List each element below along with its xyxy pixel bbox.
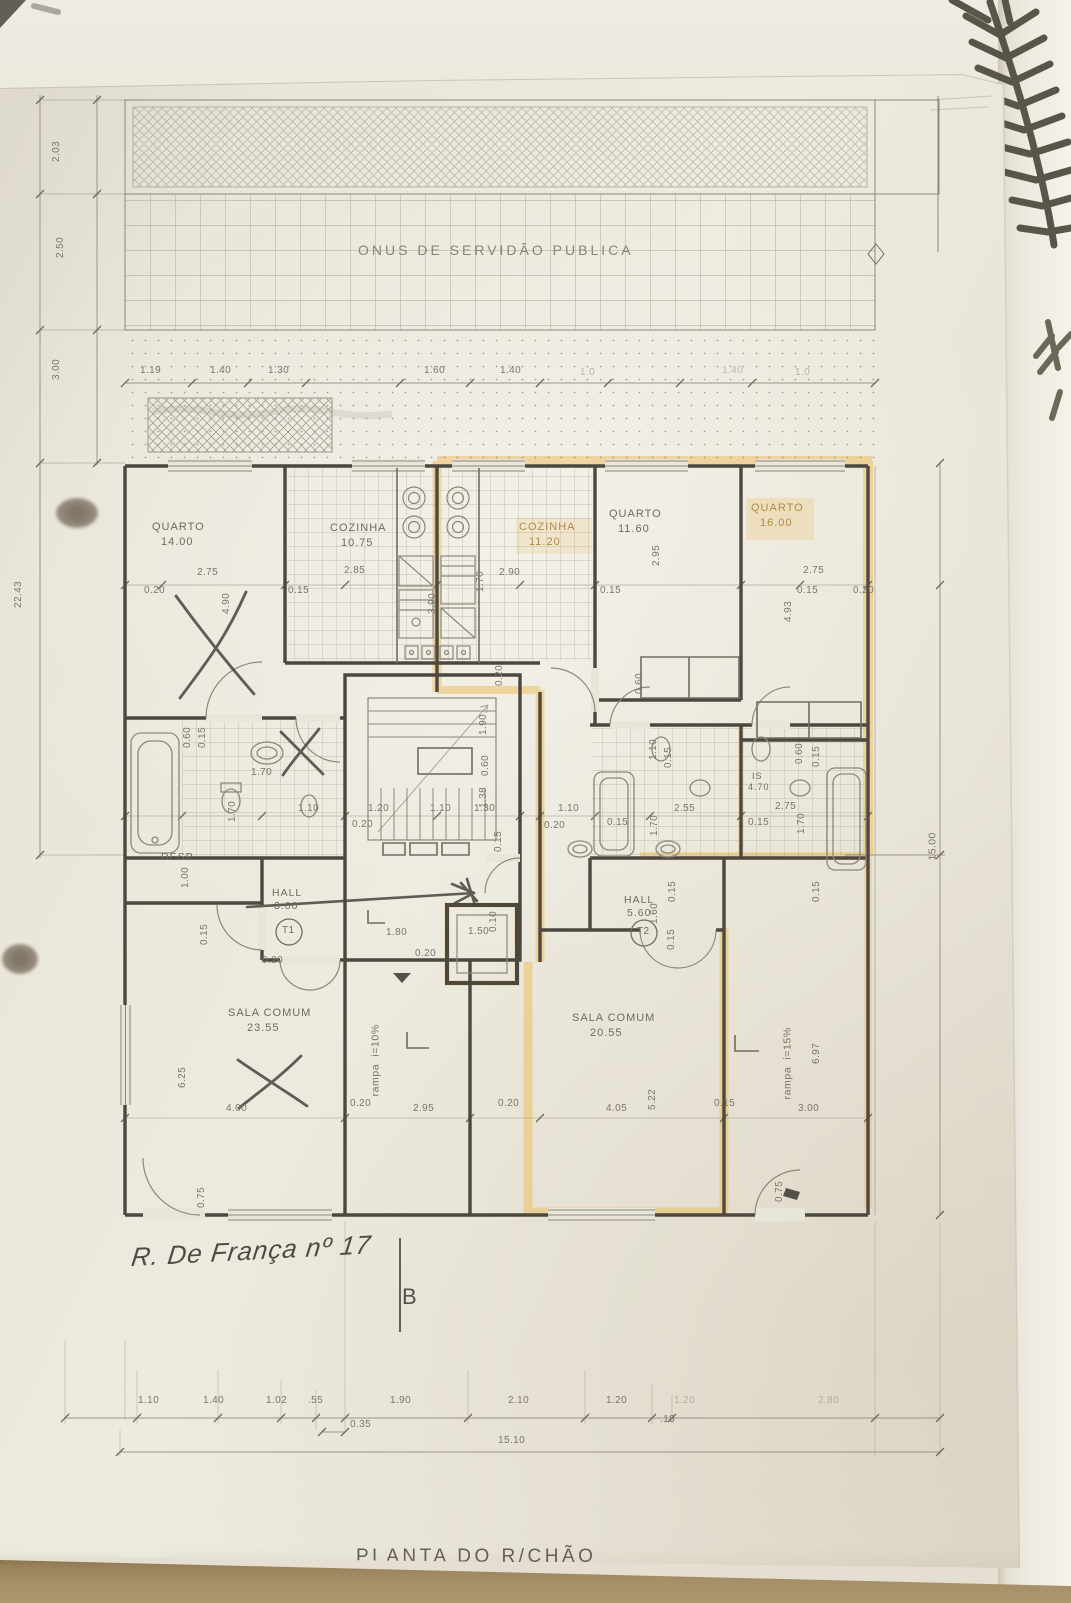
dimension-label: 0.10 [489, 911, 499, 932]
dimension-label: 0.15 [200, 924, 210, 945]
area-label: 5.60 [627, 908, 651, 919]
dimension-label: 0.15 [797, 586, 818, 596]
dimension-label: 2.90 [499, 568, 520, 578]
dimension-label: .18 [660, 1415, 675, 1425]
dimension-label: 4.93 [784, 601, 794, 622]
area-label: 11.60 [618, 524, 650, 535]
dimension-label: 1.30 [268, 366, 289, 376]
dimension-label: 2.95 [413, 1104, 434, 1114]
dimension-label: 1.10 [430, 804, 451, 814]
room-label-sala-1: SALA COMUM [228, 1008, 311, 1019]
apartment-t2-badge: T2 [637, 927, 649, 937]
dimension-label: 0.15 [714, 1099, 735, 1109]
dimension-label: 1.10 [298, 804, 319, 814]
dimension-label: 0.60 [481, 755, 491, 776]
room-label-cozinha-1: COZINHA [330, 523, 387, 534]
plan-linework [0, 0, 1071, 1603]
dimension-label: 0.20 [352, 820, 373, 830]
room-label-quarto-2: QUARTO [609, 509, 662, 520]
area-label: 4.70 [748, 783, 770, 792]
area-label: 20.55 [590, 1028, 623, 1039]
section-letter: B [402, 1286, 417, 1308]
dimension-label: 0.15 [494, 831, 504, 852]
dimension-label: .55 [308, 1396, 323, 1406]
dimension-label: 2.50 [56, 237, 66, 258]
dimension-label: 0.20 [544, 821, 565, 831]
dimension-label: 2.85 [344, 566, 365, 576]
room-label-sala-2: SALA COMUM [572, 1013, 655, 1024]
dimension-label: 5.22 [648, 1089, 658, 1110]
dimension-label: 0.15 [667, 929, 677, 950]
dimension-label: 15.00 [928, 832, 939, 860]
room-label-desp: DESP [161, 852, 194, 863]
dimension-label: 0.20 [350, 1099, 371, 1109]
dimension-label: 1.10 [138, 1396, 159, 1406]
area-label: 23.55 [247, 1023, 280, 1034]
dimension-label: 1.00 [181, 867, 191, 888]
dimension-label: 0.20 [415, 949, 436, 959]
dimension-label: 2.03 [52, 141, 62, 162]
area-label: 14.00 [161, 537, 194, 548]
dimension-label: 2.55 [674, 804, 695, 814]
dimension-label: 0.15 [812, 746, 822, 767]
dimension-label: 15.10 [498, 1436, 525, 1446]
area-label: 3.00 [274, 901, 298, 912]
dimension-label: 1.90 [479, 714, 489, 735]
blueprint-paper: ONUS DE SERVIDÃO PUBLICA1.191.401.301.60… [0, 0, 1071, 1603]
dimension-label: 1.20 [674, 1396, 695, 1406]
dimension-label: 0.20 [495, 665, 505, 686]
ramp-label-15: rampa i=15% [783, 1027, 794, 1099]
dimension-label: 1.70 [650, 815, 660, 836]
servitude-zone-label: ONUS DE SERVIDÃO PUBLICA [358, 243, 634, 257]
dimension-label: 0.20 [498, 1099, 519, 1109]
apartment-t1-badge: T1 [282, 926, 294, 936]
area-label: 10.75 [341, 538, 374, 549]
dimension-label: 0.60 [635, 673, 645, 694]
dimension-label: 1.10 [558, 804, 579, 814]
dimension-label: 1.19 [140, 366, 161, 376]
dimension-label: 6.97 [812, 1043, 822, 1064]
dimension-label: 1.20 [606, 1396, 627, 1406]
dimension-label: 1.02 [266, 1396, 287, 1406]
dimension-label: 1.90 [390, 1396, 411, 1406]
dimension-label: 2.80 [818, 1396, 839, 1406]
dimension-label: 3.00 [52, 359, 62, 380]
dimension-label: 1.40 [203, 1396, 224, 1406]
dimension-label: 4.00 [226, 1104, 247, 1114]
ramp-label-10: rampa i=10% [371, 1024, 382, 1096]
punched-hole [2, 944, 38, 974]
dimension-label: 3.00 [798, 1104, 819, 1114]
dimension-label: 0.35 [350, 1420, 371, 1430]
dimension-label: 0.20 [262, 956, 283, 966]
dimension-label: 0.60 [795, 743, 805, 764]
area-label: 16.00 [760, 518, 793, 529]
room-label-quarto-3: QUARTO [751, 503, 804, 514]
dimension-label: 0.75 [775, 1181, 785, 1202]
dimension-label: 0.15 [668, 881, 678, 902]
room-label-hall-t1: HALL [272, 888, 302, 899]
dimension-label: 2.75 [775, 802, 796, 812]
photographed-floor-plan: ONUS DE SERVIDÃO PUBLICA1.191.401.301.60… [0, 0, 1071, 1603]
dimension-label: 0.20 [144, 586, 165, 596]
dimension-label: 1.60 [424, 366, 445, 376]
dimension-label: 2.95 [652, 545, 662, 566]
dimension-label: 1.70 [228, 801, 238, 822]
dimension-label: 1.20 [368, 804, 389, 814]
punched-hole [56, 498, 98, 528]
dimension-label: 1.70 [476, 571, 486, 592]
dimension-label: 2.75 [197, 568, 218, 578]
street-annotation: R. De França nº 17 [130, 1231, 373, 1270]
dimension-label: 1.80 [386, 928, 407, 938]
dimension-label: 22.43 [14, 581, 24, 608]
area-label: 11.20 [529, 537, 561, 548]
dimension-label: 4.05 [606, 1104, 627, 1114]
dimension-label: 1.10 [649, 739, 659, 760]
dimension-label: 1.38 [479, 787, 489, 808]
dimension-label: 1.40 [722, 366, 743, 376]
dimension-label: 1.0 [580, 368, 595, 378]
dimension-label: 1.70 [797, 813, 807, 834]
dimension-label: 1.70 [251, 768, 272, 778]
dimension-label: 0.60 [183, 727, 193, 748]
dimension-label: 4.90 [222, 593, 232, 614]
dimension-label: 3.90 [428, 593, 438, 614]
dimension-label: 0.15 [607, 818, 628, 828]
dimension-label: 0.15 [664, 747, 674, 768]
dimension-label: 0.15 [288, 586, 309, 596]
dimension-label: 1.60 [650, 903, 660, 924]
room-label-is: IS [752, 772, 763, 781]
dimension-label: 6.25 [178, 1067, 188, 1088]
dimension-label: 0.15 [812, 881, 822, 902]
room-label-cozinha-2: COZINHA [519, 522, 576, 533]
dimension-label: 1.50 [468, 927, 489, 937]
dimension-label: 0.15 [600, 586, 621, 596]
dimension-label: 2.10 [508, 1396, 529, 1406]
dimension-label: 2.75 [803, 566, 824, 576]
dimension-label: 1.40 [500, 366, 521, 376]
dimension-label: 1.0 [795, 368, 810, 378]
dimension-label: 0.20 [853, 586, 874, 596]
dimension-label: 0.15 [748, 818, 769, 828]
dimension-label: 1.40 [210, 366, 231, 376]
dimension-label: 0.75 [197, 1187, 207, 1208]
room-label-quarto-1: QUARTO [152, 522, 205, 533]
dimension-label: 0.15 [198, 727, 208, 748]
